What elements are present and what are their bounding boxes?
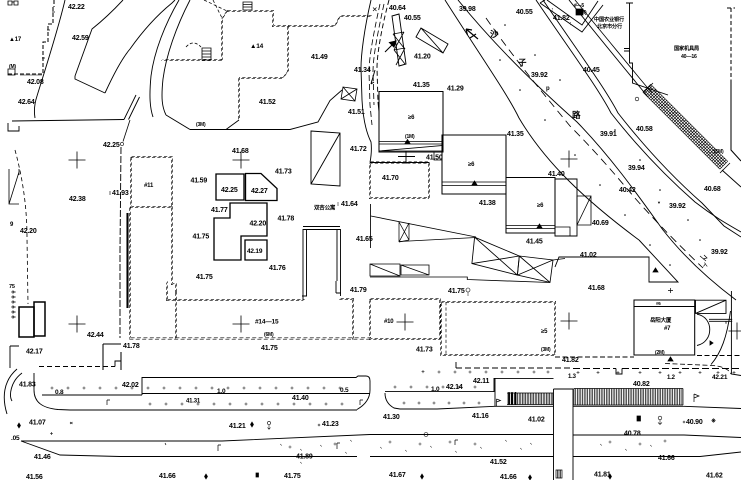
svg-text:41.75: 41.75 xyxy=(284,473,301,480)
svg-text:41.70: 41.70 xyxy=(382,175,399,182)
svg-text:41.46: 41.46 xyxy=(34,454,51,461)
svg-text:41.52: 41.52 xyxy=(259,99,276,106)
svg-text:(5M): (5M) xyxy=(714,149,724,155)
svg-text:41.77: 41.77 xyxy=(211,207,228,214)
svg-text:#10: #10 xyxy=(384,319,394,325)
svg-text:39.92: 39.92 xyxy=(669,203,686,210)
svg-text:41.20: 41.20 xyxy=(414,54,431,61)
svg-text:40.55: 40.55 xyxy=(404,15,421,22)
svg-text:沙: 沙 xyxy=(490,29,499,39)
svg-text:(3M): (3M) xyxy=(196,122,206,128)
svg-text:路: 路 xyxy=(572,110,581,120)
svg-text:39.92: 39.92 xyxy=(711,249,728,256)
svg-text:▲17: ▲17 xyxy=(9,37,22,43)
svg-text:#7: #7 xyxy=(664,326,671,332)
svg-text:40.78: 40.78 xyxy=(624,431,641,438)
svg-text:42.08: 42.08 xyxy=(27,79,44,86)
svg-text:子: 子 xyxy=(518,58,527,68)
svg-text:40.58: 40.58 xyxy=(636,126,653,133)
svg-text:42.22: 42.22 xyxy=(68,4,85,11)
svg-text:≥6: ≥6 xyxy=(468,162,475,168)
svg-text:41.51: 41.51 xyxy=(348,109,365,116)
svg-text:42.02: 42.02 xyxy=(122,382,139,389)
svg-text:41.82: 41.82 xyxy=(553,15,570,22)
svg-text:41.45: 41.45 xyxy=(526,239,543,246)
svg-text:41.67: 41.67 xyxy=(389,472,406,479)
svg-text:↑: ↑ xyxy=(569,21,572,27)
svg-text:41.66: 41.66 xyxy=(658,455,675,462)
svg-text:42.44: 42.44 xyxy=(87,332,104,339)
svg-text:75: 75 xyxy=(9,284,15,290)
svg-text:岳阳大厦: 岳阳大厦 xyxy=(650,316,672,324)
svg-text:42.20: 42.20 xyxy=(20,228,37,235)
svg-text:41.40: 41.40 xyxy=(292,395,309,402)
svg-text:双杏公寓: 双杏公寓 xyxy=(314,204,336,212)
svg-text:41.38: 41.38 xyxy=(479,200,496,207)
svg-text:#6: #6 xyxy=(656,301,661,306)
svg-text:(3M): (3M) xyxy=(541,347,551,353)
svg-text:北京市分行: 北京市分行 xyxy=(597,22,623,30)
svg-text:42.11: 42.11 xyxy=(473,378,489,385)
svg-text:≥6: ≥6 xyxy=(408,115,415,121)
svg-text:41.89: 41.89 xyxy=(296,454,313,461)
svg-text:.05: .05 xyxy=(11,435,20,442)
svg-text:(6M): (6M) xyxy=(264,332,274,338)
svg-text:↑: ↑ xyxy=(551,7,554,13)
svg-text:国家机具局: 国家机具局 xyxy=(674,44,699,52)
svg-text:40.69: 40.69 xyxy=(592,220,609,227)
svg-text:41.56: 41.56 xyxy=(26,474,43,480)
svg-text:41.75: 41.75 xyxy=(193,234,210,241)
svg-text:42.59: 42.59 xyxy=(72,35,89,42)
svg-text:≥5: ≥5 xyxy=(541,329,548,335)
svg-text:41.02: 41.02 xyxy=(580,252,597,259)
svg-text:41.78: 41.78 xyxy=(123,343,140,350)
svg-text:#14—15: #14—15 xyxy=(255,319,279,326)
svg-text:41.07: 41.07 xyxy=(29,420,46,427)
svg-text:0.8: 0.8 xyxy=(55,389,64,396)
svg-text:41.16: 41.16 xyxy=(472,413,489,420)
svg-text:42.21: 42.21 xyxy=(712,374,728,381)
svg-text:40.68: 40.68 xyxy=(704,186,721,193)
svg-text:41.62: 41.62 xyxy=(706,473,723,480)
svg-text:41.81: 41.81 xyxy=(594,472,611,479)
svg-text:41.75: 41.75 xyxy=(261,345,278,352)
svg-text:40.42: 40.42 xyxy=(619,187,636,194)
svg-text:42.20: 42.20 xyxy=(250,221,267,228)
svg-text:41.29: 41.29 xyxy=(447,86,464,93)
svg-text:41.30: 41.30 xyxy=(383,414,400,421)
svg-text:39.92: 39.92 xyxy=(531,72,548,79)
svg-text:41.73: 41.73 xyxy=(275,169,292,176)
svg-text:(2M): (2M) xyxy=(655,350,665,356)
svg-text:41.49: 41.49 xyxy=(311,54,328,61)
svg-text:41.78: 41.78 xyxy=(278,216,295,223)
svg-text:(1M): (1M) xyxy=(405,134,415,140)
svg-text:41.02: 41.02 xyxy=(528,417,545,424)
svg-text:41.35: 41.35 xyxy=(507,131,524,138)
svg-text:42.17: 42.17 xyxy=(26,349,43,356)
svg-text:41.50: 41.50 xyxy=(426,155,443,162)
svg-text:(7M): (7M) xyxy=(577,10,587,16)
svg-text:#—5: #—5 xyxy=(574,3,584,9)
svg-text:41.82: 41.82 xyxy=(562,357,579,364)
svg-text:≥6: ≥6 xyxy=(537,203,544,209)
svg-text:40.64: 40.64 xyxy=(389,5,406,12)
svg-text:41.66: 41.66 xyxy=(500,474,517,480)
svg-text:40.55: 40.55 xyxy=(516,9,533,16)
svg-text:42.38: 42.38 xyxy=(69,196,86,203)
svg-text:42.19: 42.19 xyxy=(247,248,263,255)
svg-text:39.98: 39.98 xyxy=(459,6,476,13)
svg-text:1.2: 1.2 xyxy=(667,375,676,381)
svg-text:40.90: 40.90 xyxy=(686,419,703,426)
svg-text:41.68: 41.68 xyxy=(232,148,249,155)
svg-text:40.82: 40.82 xyxy=(633,381,650,388)
svg-text:39.91: 39.91 xyxy=(600,131,617,138)
svg-text:41.21: 41.21 xyxy=(229,423,246,430)
svg-text:41.73: 41.73 xyxy=(416,347,433,354)
svg-text:1.0: 1.0 xyxy=(217,388,226,395)
svg-text:39.94: 39.94 xyxy=(628,165,645,172)
svg-text:41.59: 41.59 xyxy=(191,178,208,185)
svg-text:1.0: 1.0 xyxy=(431,386,440,393)
svg-text:41.34: 41.34 xyxy=(354,67,371,74)
svg-text:41.31: 41.31 xyxy=(186,399,201,405)
svg-text:41.76: 41.76 xyxy=(269,265,286,272)
svg-text:42.25: 42.25 xyxy=(221,187,238,194)
svg-text:41.75: 41.75 xyxy=(196,274,213,281)
svg-text:41.75: 41.75 xyxy=(448,288,465,295)
svg-text:41.68: 41.68 xyxy=(588,285,605,292)
svg-text:▲14: ▲14 xyxy=(250,43,264,50)
svg-text:42.64: 42.64 xyxy=(18,99,35,106)
svg-text:42.25: 42.25 xyxy=(103,142,120,149)
svg-text:41.23: 41.23 xyxy=(322,421,339,428)
svg-text:▼: ▼ xyxy=(657,200,661,205)
svg-text:41.83: 41.83 xyxy=(19,382,36,389)
svg-text:41.72: 41.72 xyxy=(350,146,367,153)
svg-text:40.45: 40.45 xyxy=(583,67,600,74)
svg-text:41.35: 41.35 xyxy=(413,82,430,89)
svg-text:中国农业银行: 中国农业银行 xyxy=(594,15,625,23)
svg-text:#11: #11 xyxy=(144,183,154,189)
svg-text:41.66: 41.66 xyxy=(159,473,176,480)
svg-text:1.3: 1.3 xyxy=(568,374,577,380)
svg-text:41.79: 41.79 xyxy=(350,287,367,294)
svg-text:40—16: 40—16 xyxy=(681,54,697,60)
svg-text:41.40: 41.40 xyxy=(548,171,565,178)
svg-text:p: p xyxy=(546,86,550,92)
svg-text:41.64: 41.64 xyxy=(341,201,358,208)
svg-text:42.27: 42.27 xyxy=(251,188,268,195)
svg-text:41.52: 41.52 xyxy=(490,459,507,466)
svg-text:42.14: 42.14 xyxy=(446,384,463,391)
